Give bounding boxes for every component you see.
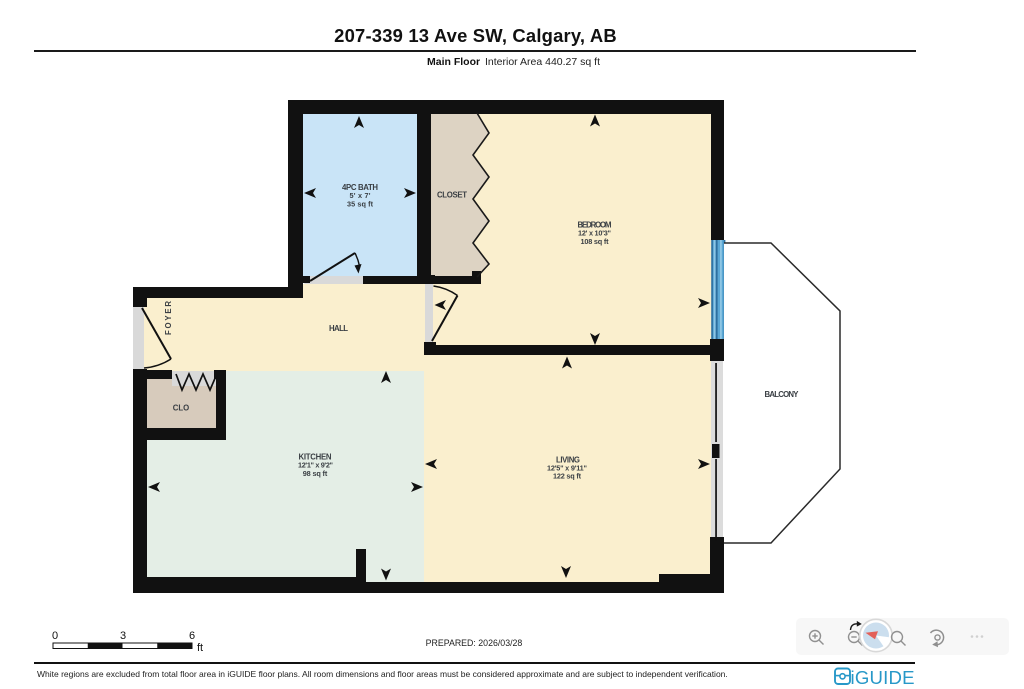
svg-text:3: 3: [120, 630, 126, 642]
svg-text:ft: ft: [197, 642, 203, 654]
svg-text:iGUIDE: iGUIDE: [851, 667, 915, 688]
svg-text:122 sq ft: 122 sq ft: [553, 472, 582, 481]
svg-text:CLO: CLO: [173, 404, 190, 413]
svg-text:HALL: HALL: [329, 324, 348, 333]
svg-text:6: 6: [189, 630, 195, 642]
svg-text:PREPARED: 2026/03/28: PREPARED: 2026/03/28: [426, 638, 523, 648]
svg-text:98 sq ft: 98 sq ft: [303, 469, 328, 478]
svg-text:CLOSET: CLOSET: [437, 191, 467, 200]
svg-text:BALCONY: BALCONY: [765, 390, 800, 399]
svg-text:35 sq ft: 35 sq ft: [347, 199, 374, 208]
svg-text:0: 0: [52, 630, 58, 642]
svg-text:108 sq ft: 108 sq ft: [581, 237, 610, 246]
